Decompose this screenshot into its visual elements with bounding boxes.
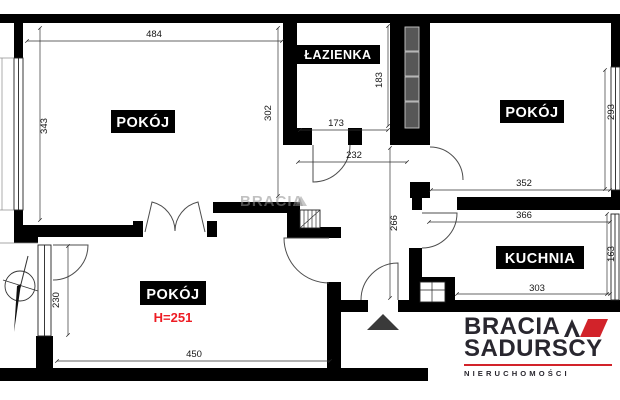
french-door-left bbox=[145, 202, 175, 232]
dim-266: 266 bbox=[389, 215, 400, 231]
door-post bbox=[133, 221, 143, 237]
wall-segment bbox=[398, 300, 409, 312]
dim-173: 173 bbox=[328, 118, 344, 129]
agency-logo: BRACIA SADURSCY NIERUCHOMOŚCI bbox=[464, 316, 614, 378]
wall-segment bbox=[0, 368, 428, 381]
north-arrow-needle bbox=[14, 284, 21, 332]
dim-450: 450 bbox=[186, 349, 202, 360]
logo-red-divider bbox=[464, 364, 612, 366]
wall-segment bbox=[14, 225, 38, 243]
wall-segment bbox=[327, 282, 341, 368]
doors bbox=[53, 145, 463, 300]
entrance-triangle bbox=[367, 314, 399, 330]
bathroom-door bbox=[313, 145, 350, 182]
north-arrow-shaft bbox=[20, 256, 28, 288]
balcony-door bbox=[53, 245, 88, 280]
wall-segment bbox=[440, 300, 620, 312]
wall-segment bbox=[412, 197, 422, 210]
dim-230: 230 bbox=[51, 292, 62, 308]
french-door-right bbox=[175, 202, 205, 232]
room-label-bathroom: ŁAZIENKA bbox=[304, 48, 371, 62]
fixtures bbox=[300, 210, 445, 302]
wall-segment bbox=[457, 197, 620, 210]
dim-484: 484 bbox=[146, 29, 162, 40]
wall-segment bbox=[611, 14, 620, 67]
wall-segment bbox=[611, 190, 620, 210]
room-label-kitchen: KUCHNIA bbox=[505, 251, 575, 267]
wall-segment bbox=[0, 14, 620, 23]
entrance-door bbox=[361, 263, 398, 300]
shaft-cell bbox=[405, 52, 419, 76]
dim-303: 303 bbox=[529, 283, 545, 294]
door-post bbox=[207, 221, 217, 237]
wall-segment bbox=[341, 300, 368, 312]
wall-segment bbox=[283, 23, 297, 145]
room-label-bottom-left: POKÓJ bbox=[146, 285, 199, 303]
room-labels: POKÓJ ŁAZIENKA POKÓJ KUCHNIA POKÓJ H=251 bbox=[111, 45, 584, 325]
dim-293: 293 bbox=[606, 104, 617, 120]
watermark: BRACIA bbox=[240, 193, 307, 210]
dim-352: 352 bbox=[516, 178, 532, 189]
dim-343: 343 bbox=[39, 118, 50, 134]
floor-plan-page: 484 343 302 183 173 232 266 352 293 366 … bbox=[0, 0, 620, 400]
logo-brand-bottom: SADURSCY bbox=[464, 338, 614, 360]
kitchen-fixture bbox=[420, 282, 445, 302]
shaft-cell bbox=[405, 102, 419, 128]
north-arrow bbox=[3, 256, 38, 332]
ventilation-shaft bbox=[405, 27, 419, 128]
dim-302: 302 bbox=[263, 105, 274, 121]
wall-segment bbox=[300, 227, 341, 238]
logo-tagline: NIERUCHOMOŚCI bbox=[464, 369, 614, 378]
shaft-cell bbox=[405, 27, 419, 51]
shaft-cell bbox=[405, 77, 419, 101]
wall-segment bbox=[409, 248, 422, 277]
wall-segment bbox=[348, 128, 362, 145]
height-note: H=251 bbox=[154, 310, 193, 325]
kitchen-door bbox=[422, 213, 457, 248]
wall-segment bbox=[283, 128, 312, 145]
wall-segment bbox=[36, 336, 53, 368]
watermark-text: BRACIA bbox=[240, 193, 304, 210]
right-room-door bbox=[430, 147, 463, 180]
dim-183: 183 bbox=[374, 72, 385, 88]
wall-segment bbox=[14, 14, 23, 58]
dim-163: 163 bbox=[606, 246, 617, 262]
room-label-top-right: POKÓJ bbox=[505, 103, 558, 121]
bottom-room-door bbox=[284, 238, 329, 283]
room-label-top-left: POKÓJ bbox=[116, 113, 169, 131]
wall-segment bbox=[410, 182, 430, 198]
dim-366: 366 bbox=[516, 210, 532, 221]
dim-232: 232 bbox=[346, 150, 362, 161]
